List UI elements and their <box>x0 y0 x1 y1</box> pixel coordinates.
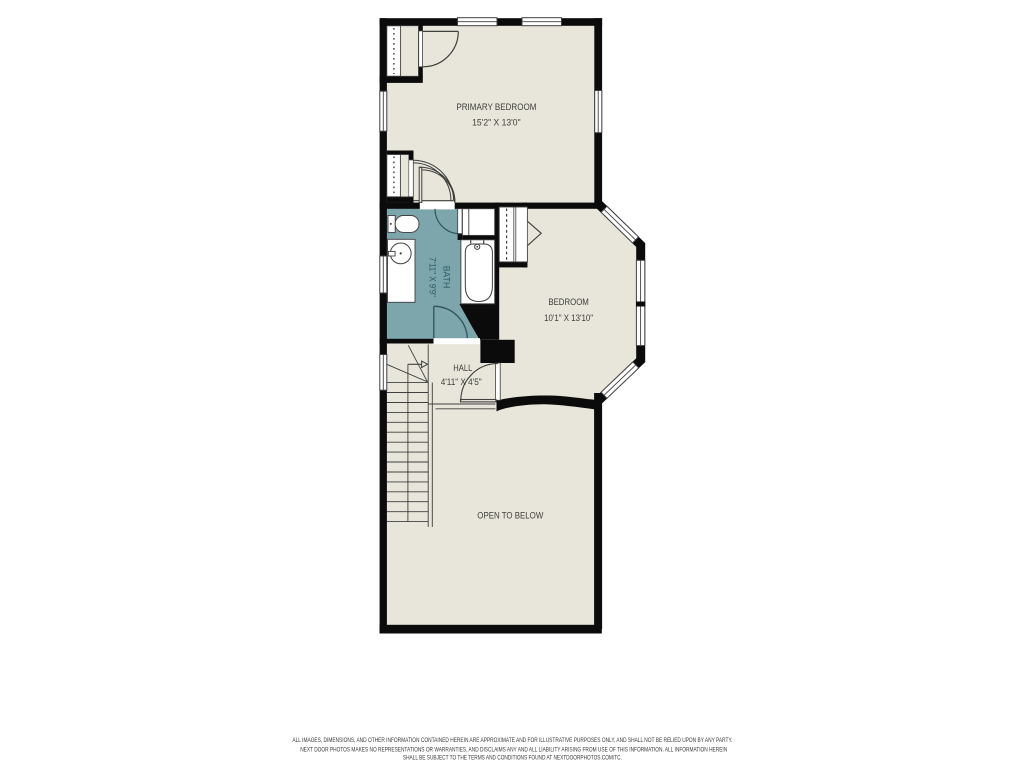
svg-text:ALL IMAGES, DIMENSIONS, AND OT: ALL IMAGES, DIMENSIONS, AND OTHER INFORM… <box>292 737 732 744</box>
svg-text:15'2" X 13'0": 15'2" X 13'0" <box>472 117 521 127</box>
svg-text:7'11" X 9'9": 7'11" X 9'9" <box>428 257 438 297</box>
svg-text:OPEN TO BELOW: OPEN TO BELOW <box>477 510 543 520</box>
svg-text:HALL: HALL <box>453 363 472 373</box>
svg-text:10'1" X 13'10": 10'1" X 13'10" <box>544 313 593 323</box>
svg-text:BATH: BATH <box>442 266 452 289</box>
svg-text:SHALL BE SUBJECT TO THE TERMS: SHALL BE SUBJECT TO THE TERMS AND CONDIT… <box>403 755 622 762</box>
svg-text:NEXT DOOR PHOTOS MAKES NO REPR: NEXT DOOR PHOTOS MAKES NO REPRESENTATION… <box>300 746 727 753</box>
svg-text:4'11" X 4'5": 4'11" X 4'5" <box>441 377 482 387</box>
svg-text:PRIMARY BEDROOM: PRIMARY BEDROOM <box>456 102 536 112</box>
svg-text:BEDROOM: BEDROOM <box>548 297 589 307</box>
